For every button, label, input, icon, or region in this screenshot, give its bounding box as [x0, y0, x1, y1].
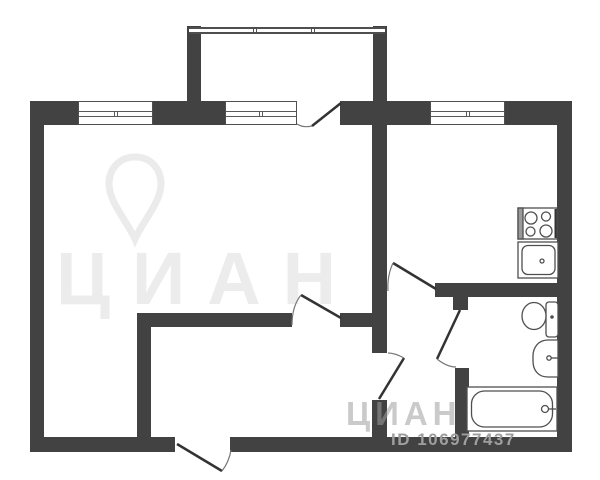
door-entrance — [177, 444, 231, 471]
bathtub-icon — [467, 387, 557, 431]
listing-id-watermark: ID 106977437 — [391, 430, 516, 450]
floor-plan: ЦИАН ЦИАН ID 106977437 — [0, 0, 600, 480]
door-balcony — [297, 103, 341, 127]
watermark-center-text: ЦИАН — [56, 236, 358, 321]
watermark-bottom-text: ЦИАН — [346, 395, 462, 433]
washbasin-icon — [533, 340, 558, 377]
stove-icon — [518, 208, 557, 239]
kitchen-sink-icon — [518, 242, 558, 278]
map-pin-watermark-icon — [109, 157, 161, 239]
door-hall-corridor — [379, 353, 404, 399]
door-kitchen — [388, 263, 436, 291]
toilet-icon — [522, 302, 558, 337]
door-bathroom — [437, 310, 460, 367]
